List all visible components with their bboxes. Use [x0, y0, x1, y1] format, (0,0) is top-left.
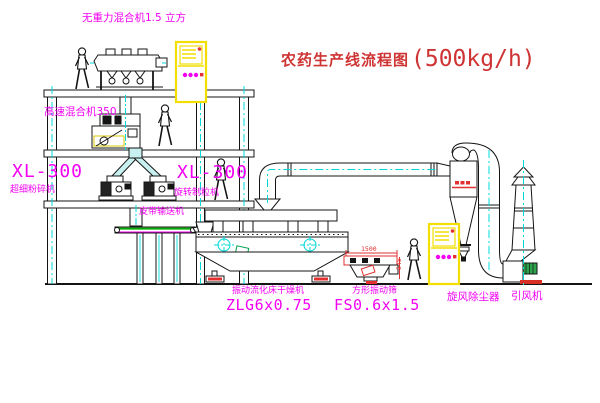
label-belt-conveyor: 皮带输送机	[139, 208, 184, 217]
label-screen-name: 方形振动筛	[352, 287, 397, 296]
fluid-bed-dryer-drawing	[196, 199, 348, 282]
granulator-drawing	[142, 176, 176, 200]
person-roof	[76, 48, 89, 89]
label-fan: 引风机	[511, 291, 543, 302]
vibrating-screen-drawing	[344, 250, 400, 284]
label-granulator-name: 旋转制粒机	[174, 189, 219, 198]
label-pulverizer-model: XL-300	[12, 163, 83, 181]
person-ground	[408, 239, 421, 280]
person-floor2	[159, 105, 172, 146]
label-screen-model: FS0.6x1.5	[334, 298, 420, 313]
gravity-free-mixer-drawing	[90, 49, 167, 90]
exhaust-duct	[260, 163, 447, 203]
label-dryer-name: 振动流化床干燥机	[232, 287, 304, 296]
sieve-dim-width-text: 1500	[361, 245, 377, 253]
label-top-mixer: 无重力混合机1.5 立方	[82, 13, 186, 24]
title-text: 农药生产线流程图	[281, 49, 409, 72]
label-dryer-model: ZLG6x0.75	[226, 298, 312, 313]
diagram-title: 农药生产线流程图 (500kg/h)	[281, 46, 536, 72]
label-high-speed-mixer: 高速混合机350	[44, 107, 117, 118]
label-pulverizer-name: 超细粉碎机	[10, 186, 55, 195]
label-cyclone: 旋风除尘器	[447, 292, 500, 303]
pesticide-line-flow-diagram: 1500 545 农药生产线流程图 (500kg/h) 无重力混合机1.5 立方…	[0, 0, 600, 403]
control-cabinet-upper	[176, 42, 206, 102]
control-cabinet-lower	[429, 224, 459, 284]
label-granulator-model: XL-300	[177, 164, 248, 182]
fan-and-stack-drawing	[479, 160, 543, 288]
pulverizer-drawing	[99, 176, 133, 200]
title-capacity: (500kg/h)	[411, 46, 536, 72]
high-speed-mixer-drawing	[92, 95, 140, 150]
sieve-dim-height-text: 545	[395, 258, 403, 270]
